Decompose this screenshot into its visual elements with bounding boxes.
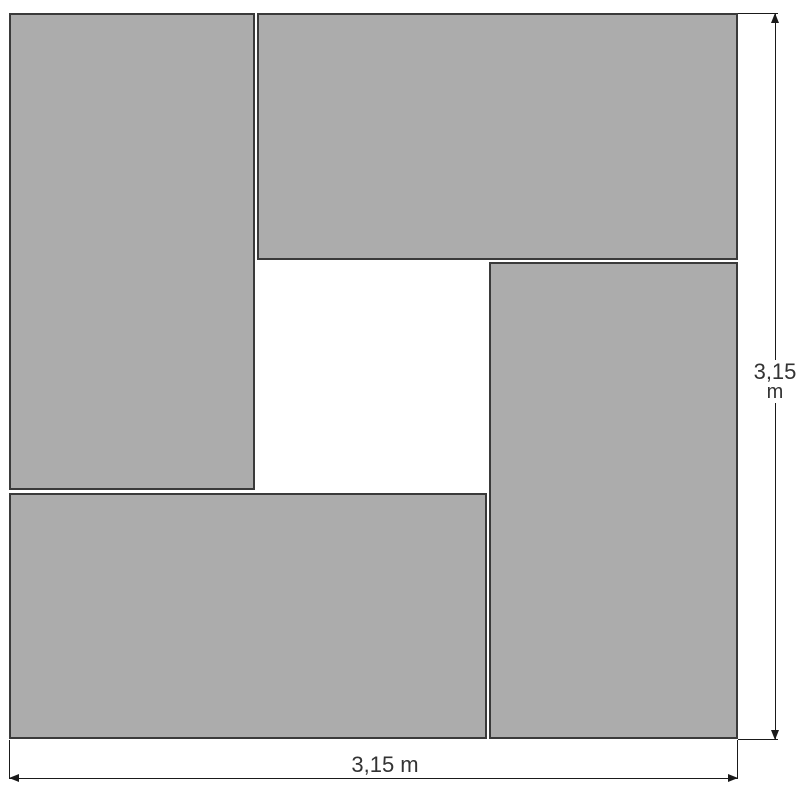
extension-line-bottom-right-drop — [737, 740, 738, 778]
panel-top-left — [9, 13, 255, 490]
dimension-arrow-left-icon — [9, 774, 19, 782]
diagram-canvas: 3,15 m 3,15 m — [0, 0, 800, 800]
dimension-arrow-up-icon — [771, 13, 779, 23]
panel-right — [489, 262, 738, 739]
right-dimension-label: 3,15 m — [751, 360, 800, 403]
dimension-arrow-down-icon — [771, 730, 779, 740]
extension-line-bottom-left-drop — [9, 740, 10, 778]
right-dimension-unit: m — [754, 383, 797, 402]
dimension-arrow-right-icon — [728, 774, 738, 782]
bottom-dimension-label: 3,15 m — [346, 754, 423, 777]
panel-bottom-left — [9, 493, 487, 739]
horizontal-dimension-line — [9, 778, 738, 779]
right-dimension-value: 3,15 — [754, 361, 797, 383]
center-square-void — [257, 262, 487, 491]
panel-top-right — [257, 13, 738, 260]
